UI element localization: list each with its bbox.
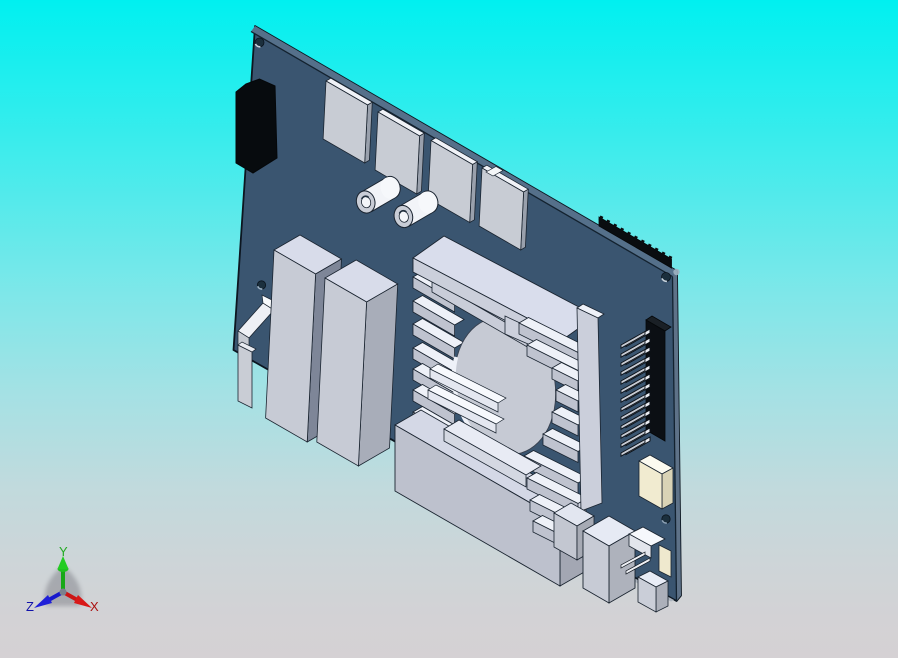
svg-text:X: X [90, 599, 99, 614]
svg-text:Z: Z [26, 599, 34, 614]
svg-text:Y: Y [59, 544, 68, 559]
